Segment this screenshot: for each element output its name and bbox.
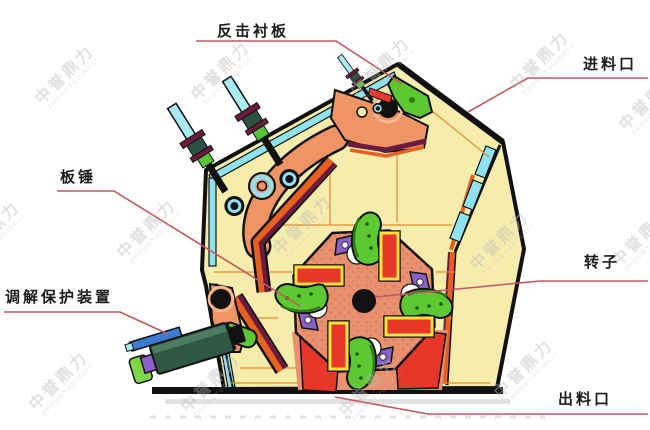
label-protection-device: 调解保护装置 [5,286,113,307]
label-blow-bar: 板锤 [60,166,96,187]
impact-crusher-diagram: 反击衬板 进料口 板锤 调解保护装置 转子 出料口 中誉鼎力ZHONGYUDIN… [0,0,650,430]
label-feed-inlet: 进料口 [583,53,637,74]
label-discharge-outlet: 出料口 [558,388,612,409]
label-impact-liner: 反击衬板 [217,20,289,41]
label-rotor: 转子 [584,251,620,272]
rotor-shaft [352,289,376,313]
leader-protection-device [4,312,168,334]
leader-feed-inlet [468,78,648,112]
crusher-drawing [0,0,650,430]
